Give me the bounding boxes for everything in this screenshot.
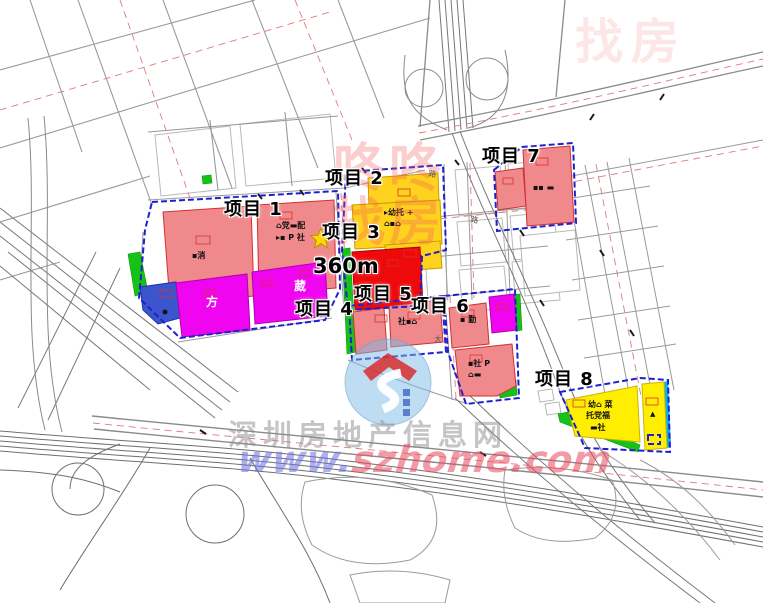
label-project-8: 项目 8	[535, 371, 594, 389]
p5-icons: 社▪⌂	[397, 316, 417, 326]
p2-icons-1: ▸幼托 +	[384, 207, 414, 217]
blue-parcel-dot	[163, 310, 168, 315]
label-project-4: 项目 4	[295, 301, 354, 319]
label-project-5: 项目 5	[354, 286, 413, 304]
magenta-west-label: 方	[206, 294, 218, 309]
parcel-project6-south	[455, 344, 516, 396]
label-distance-360m: 360m	[313, 256, 379, 277]
site-url-watermark: www.szhome.com	[236, 438, 614, 481]
p1-right-icons-1: ⌂党▬配	[276, 220, 305, 230]
p6-south-icons-2: ⌂▬	[468, 370, 481, 379]
parcel-blue-utility	[140, 282, 180, 324]
road-char-3: 大	[434, 334, 442, 344]
road-char-1: 路	[428, 168, 437, 179]
p6-south-icons-1: ▪社 P	[468, 358, 490, 368]
label-project-3: 项目 3	[322, 224, 381, 242]
label-project-2: 项目 2	[325, 170, 384, 188]
p2-icons-2: ⌂▪⌂	[384, 219, 401, 228]
label-project-6: 项目 6	[411, 298, 470, 316]
p8-person-icon: ▲	[650, 410, 656, 418]
p8-icons-3: ▬社	[590, 422, 606, 432]
label-project-1: 项目 1	[224, 201, 283, 219]
road-char-2: 路	[470, 214, 479, 225]
site-url-domain: szhome.com	[350, 438, 613, 481]
p7-icons: ▪▪ ▬	[533, 183, 554, 192]
site-url-www: www.	[236, 438, 355, 481]
parcel-project7-west	[495, 168, 526, 210]
p8-icons-1: 幼⌂ 菜	[588, 399, 613, 409]
p1-left-icons: ▪消	[192, 250, 205, 260]
p1-right-icons-2: ▸▪ P 社	[276, 232, 305, 242]
parcel-project6-magenta	[489, 294, 517, 333]
magenta-east-label: 葳	[294, 278, 306, 293]
p8-icons-2: 托党福	[586, 410, 610, 420]
planning-map-screenshot: ▪消 ⌂党▬配 ▸▪ P 社 方 葳 ▸幼托 + ⌂▪⌂ 社▪⌂ ▪ 勤 ▪社 …	[0, 0, 763, 603]
label-project-7: 项目 7	[482, 148, 541, 166]
